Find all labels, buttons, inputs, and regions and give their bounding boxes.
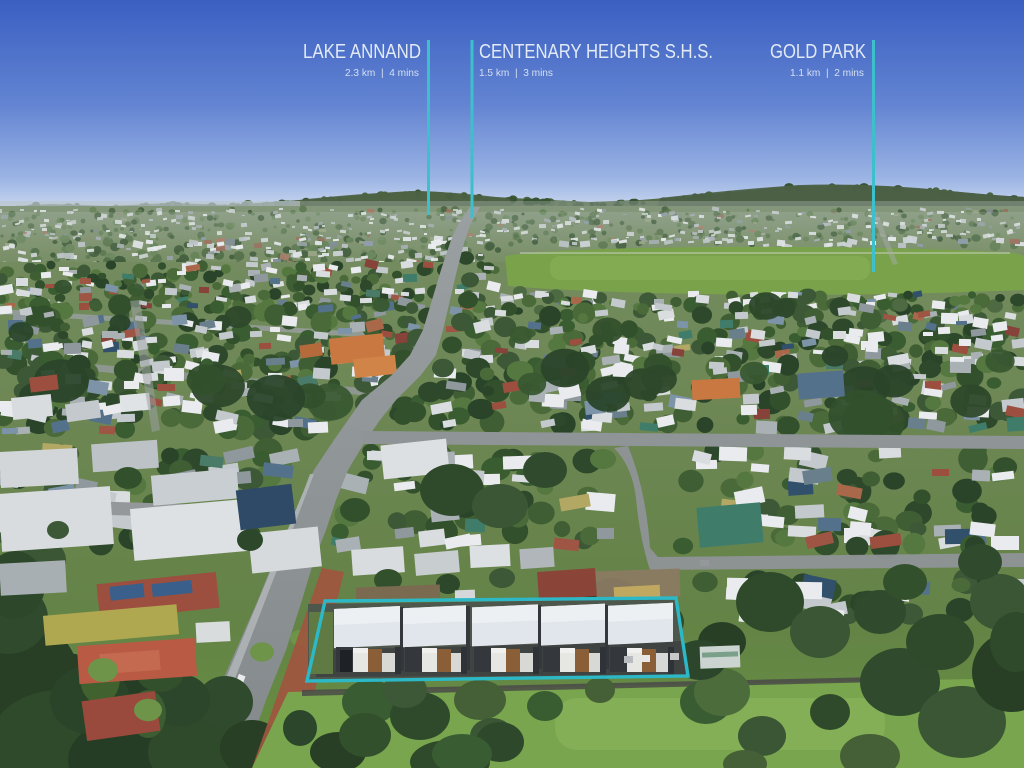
svg-text:CENTENARY HEIGHTS S.H.S.: CENTENARY HEIGHTS S.H.S. <box>479 40 713 63</box>
svg-text:LAKE ANNAND: LAKE ANNAND <box>303 40 421 63</box>
svg-text:1.1 km | 2 mins: 1.1 km | 2 mins <box>790 67 864 79</box>
svg-text:1.5 km | 3 mins: 1.5 km | 3 mins <box>479 67 553 79</box>
svg-text:GOLD PARK: GOLD PARK <box>770 40 866 63</box>
svg-text:2.3 km | 4 mins: 2.3 km | 4 mins <box>345 67 419 79</box>
